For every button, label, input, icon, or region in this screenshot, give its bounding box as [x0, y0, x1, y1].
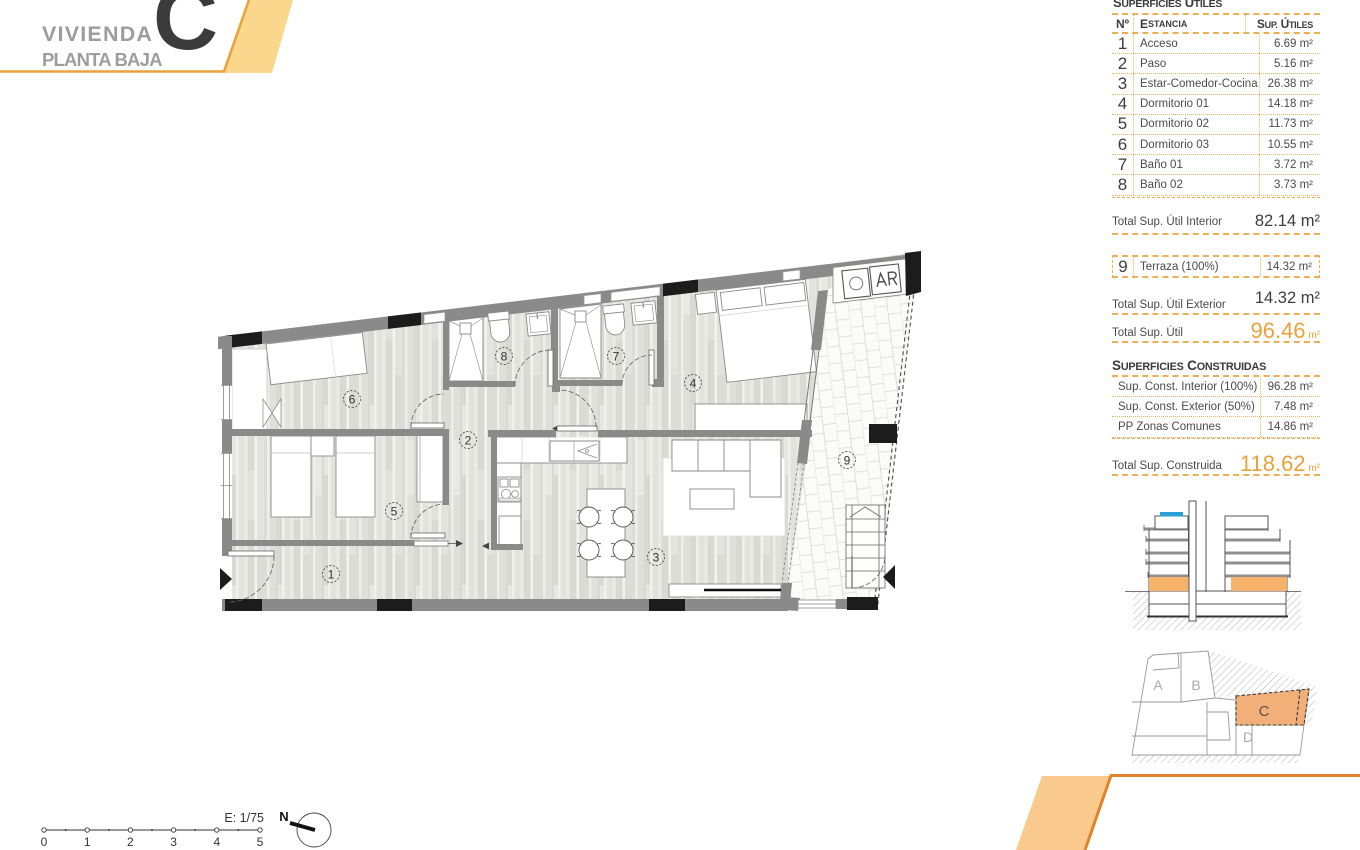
svg-text:N: N [279, 809, 288, 824]
svg-text:5: 5 [391, 504, 398, 518]
svg-text:1: 1 [328, 567, 335, 581]
svg-text:5: 5 [257, 835, 264, 849]
svg-text:3: 3 [170, 835, 177, 849]
svg-text:B: B [1191, 677, 1200, 693]
svg-text:2: 2 [127, 835, 134, 849]
svg-text:9: 9 [844, 453, 851, 467]
svg-text:4: 4 [213, 835, 220, 849]
svg-text:A: A [1153, 677, 1163, 693]
svg-text:2: 2 [465, 433, 472, 447]
svg-text:7: 7 [613, 349, 620, 363]
svg-text:0: 0 [41, 835, 48, 849]
svg-text:E: 1/75: E: 1/75 [224, 811, 264, 825]
svg-text:3: 3 [653, 550, 660, 564]
svg-text:1: 1 [84, 835, 91, 849]
svg-text:C: C [1259, 703, 1270, 720]
svg-text:6: 6 [349, 392, 356, 406]
svg-text:D: D [1243, 729, 1253, 745]
svg-text:8: 8 [501, 349, 508, 363]
svg-text:4: 4 [690, 376, 697, 390]
